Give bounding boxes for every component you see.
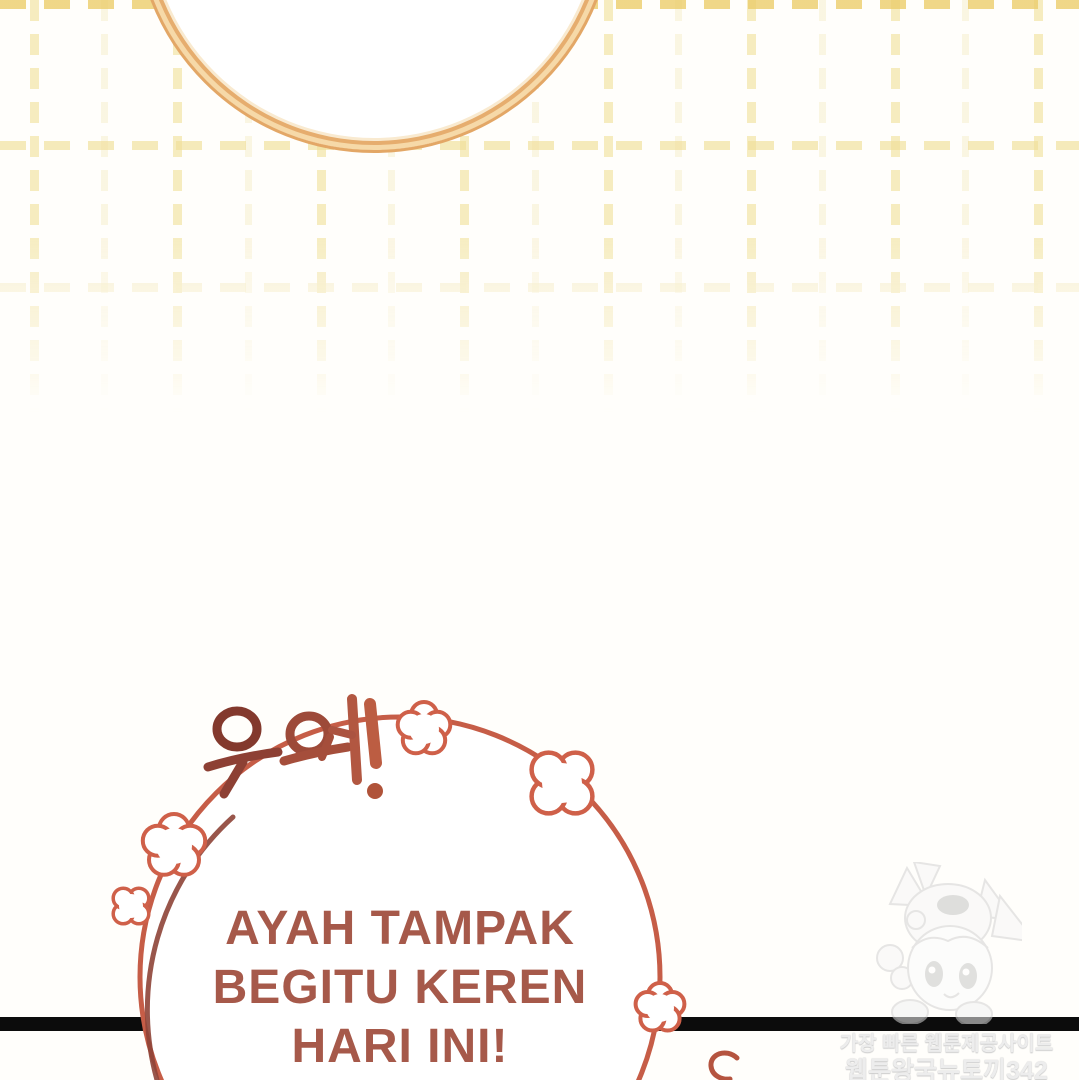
- webtoon-panel-page: AYAH TAMPAK BEGITU KEREN HARI INI!: [0, 0, 1079, 1080]
- watermark-line1: 가장 빠른 웹툰제공사이트: [814, 1031, 1079, 1057]
- korean-exclamation-art: [208, 699, 383, 799]
- grid-line-vertical-minor: [819, 0, 826, 412]
- flower-decoration-icon: [143, 814, 205, 875]
- flower-decoration-icon: [532, 753, 593, 814]
- dialog-line: BEGITU KEREN: [140, 958, 660, 1017]
- grid-line-vertical: [1034, 0, 1043, 412]
- watermark: 가장 빠른 웹툰제공사이트 웹툰왕국뉴토끼342: [814, 1031, 1079, 1080]
- grid-line-vertical: [604, 0, 613, 412]
- grid-line-vertical-minor: [962, 0, 969, 412]
- grid-line-vertical: [30, 0, 39, 412]
- flower-decoration-icon: [398, 702, 451, 753]
- dialog-line: AYAH TAMPAK: [140, 899, 660, 958]
- dialog-line: HARI INI!: [140, 1017, 660, 1076]
- grid-line-horizontal: [0, 283, 1079, 292]
- grid-line-vertical: [173, 0, 182, 412]
- chibi-girl-plush-rabbit-hat-icon: [852, 862, 1022, 1024]
- dialog-text: AYAH TAMPAK BEGITU KEREN HARI INI!: [140, 899, 660, 1076]
- bubble-tail-squiggle-icon: [711, 1053, 737, 1079]
- grid-line-vertical: [747, 0, 756, 412]
- grid-line-vertical-minor: [101, 0, 108, 412]
- grid-line-vertical-minor: [675, 0, 682, 412]
- watermark-line2: 웹툰왕국뉴토끼342: [814, 1057, 1079, 1080]
- grid-line-horizontal: [0, 141, 1079, 150]
- grid-line-vertical: [891, 0, 900, 412]
